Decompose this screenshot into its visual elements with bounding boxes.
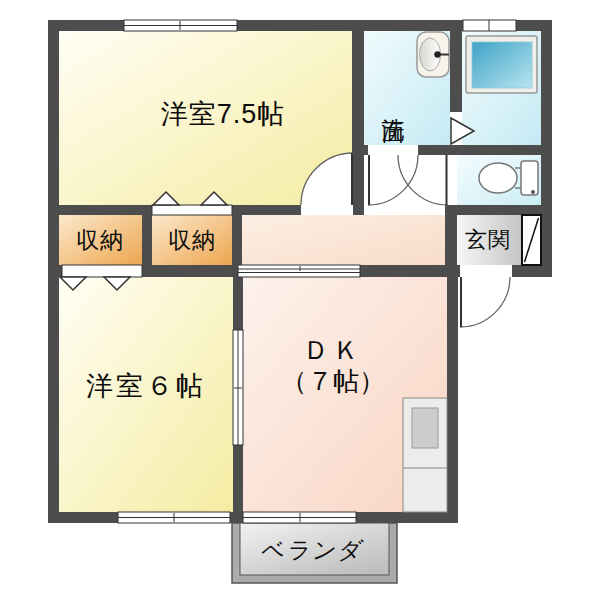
toilet-icon [479,161,538,195]
bathtub-icon [466,36,537,93]
closet-a-door-strip [62,265,142,277]
closet-b-door-strip [152,205,232,215]
closet-b-label: 収納 [168,225,216,256]
window-dk-bottom-icon [243,512,356,523]
floor-plan-drawing [0,0,600,600]
window-bath-top-icon [463,20,516,31]
western-room-6-label: 洋室６帖 [86,368,206,404]
wall-toilet-bottom [445,205,552,215]
sink-icon [417,32,449,77]
floor-plan: 洋室7.5帖 洗面 収納 収納 玄関 洋室６帖 ＤＫ （７帖） ベランダ [0,0,600,600]
opening-entrance-dk-door [460,265,512,277]
sliding-door-hall-dk-icon [238,265,360,277]
veranda-label: ベランダ [259,535,367,566]
closet-a-label: 収納 [76,225,124,256]
washroom-label: 洗面 [379,99,410,109]
wall-dk-right [447,277,458,512]
kitchen-counter-icon [403,398,447,512]
door-swing-entrance-dk [460,277,510,327]
window-room75-top-icon [124,20,237,31]
sliding-door-room6-dk-icon [233,330,243,445]
wall-closet-right [232,215,242,265]
entrance-label: 玄関 [465,225,511,255]
dk-label-name: ＤＫ [281,335,385,366]
dk-label-size: （７帖） [281,366,385,397]
wall-closet-divider [142,215,152,265]
wall-room75-washroom [352,31,364,205]
front-door-icon [522,215,541,265]
window-room6-bottom-icon [118,512,230,523]
opening-washroom-door [368,145,418,155]
western-room-7-5-label: 洋室7.5帖 [161,96,286,132]
dk-label: ＤＫ （７帖） [281,335,385,396]
opening-room75-door [301,205,353,215]
door-swing-toilet [398,155,448,205]
hallway-floor [242,215,447,265]
